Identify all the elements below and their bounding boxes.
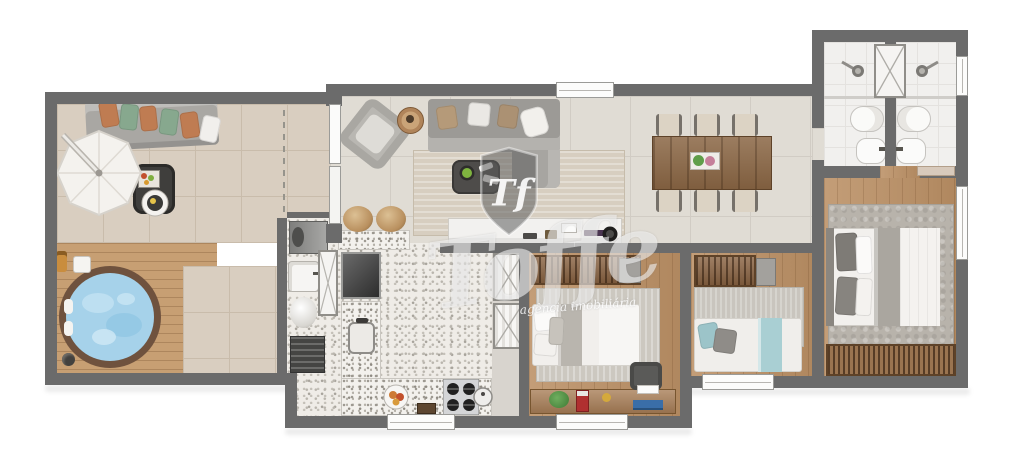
- wall: [326, 84, 342, 106]
- bed-duvet: [900, 228, 940, 326]
- fruit: [144, 180, 149, 185]
- candle: [56, 251, 67, 272]
- door-sill: [917, 166, 955, 176]
- wall: [45, 373, 297, 385]
- hot-tub: [58, 265, 162, 369]
- dining-chair: [732, 190, 758, 212]
- paper: [637, 385, 659, 394]
- shower-head: [914, 58, 940, 80]
- headboard: [826, 228, 834, 326]
- wall: [45, 92, 337, 104]
- books: [633, 400, 663, 408]
- refrigerator: [341, 252, 381, 299]
- washer-door: [292, 227, 304, 247]
- bench-wardrobe: [826, 344, 956, 376]
- decor-bowl: [459, 165, 475, 181]
- master-doorway: [880, 166, 920, 178]
- throw-pillow: [467, 102, 491, 127]
- bar-stool: [376, 206, 406, 232]
- wall: [277, 218, 287, 373]
- console-decor: [523, 233, 537, 239]
- console-decor: [561, 223, 577, 233]
- patio-umbrella: [55, 129, 143, 217]
- floor-plan: Tf Toffe agência imobiliária: [0, 0, 1024, 474]
- fruit: [148, 175, 154, 181]
- wall: [440, 243, 812, 253]
- cutting-board: [417, 403, 436, 414]
- window: [387, 414, 455, 430]
- plan-shadow: [285, 428, 692, 435]
- bed-pillow: [548, 317, 564, 346]
- side-tray: [141, 189, 169, 217]
- sliding-door-panel: [329, 104, 341, 164]
- duct-shaft: [874, 44, 906, 98]
- deck-light: [62, 353, 75, 366]
- desk-decor: [602, 393, 611, 402]
- window: [956, 56, 968, 96]
- plant: [705, 156, 715, 166]
- wall: [812, 96, 824, 128]
- shower-head: [840, 58, 866, 80]
- throw-pillow: [179, 111, 200, 139]
- breakfast-bar: [338, 230, 410, 250]
- throw-pillow: [158, 108, 179, 136]
- laundry-sink: [288, 261, 319, 292]
- wall: [287, 212, 330, 218]
- speaker: [602, 226, 618, 242]
- fruit-bowl: [383, 384, 409, 410]
- balcony-floor: [183, 266, 277, 373]
- fruit: [141, 173, 147, 179]
- drying-rack: [290, 336, 325, 373]
- book: [576, 390, 589, 412]
- laundry-basin: [290, 297, 317, 328]
- dining-chair: [732, 114, 758, 136]
- wall: [812, 166, 880, 178]
- throw-pillow: [139, 105, 159, 132]
- wall: [45, 92, 57, 385]
- window: [956, 186, 968, 260]
- wardrobe-shelf: [619, 258, 641, 283]
- window: [556, 82, 614, 98]
- toilet: [850, 106, 884, 132]
- desk-plant: [549, 391, 569, 408]
- dining-chair: [656, 190, 682, 212]
- wall: [812, 30, 824, 96]
- wardrobe-shelf: [756, 258, 776, 286]
- wall: [519, 253, 529, 416]
- throw-pillow: [119, 103, 140, 131]
- bathroom-sink: [856, 138, 886, 164]
- window: [702, 374, 774, 390]
- prep-sink: [473, 387, 493, 407]
- plant: [693, 155, 704, 166]
- folded-towel: [73, 256, 91, 273]
- bar-stool: [343, 206, 373, 232]
- wall: [680, 253, 691, 416]
- bed-pillow: [855, 278, 873, 317]
- kitchen-sink: [348, 322, 375, 354]
- side-table: [397, 107, 424, 134]
- throw-pillow: [496, 104, 519, 130]
- bed-blanket: [874, 228, 900, 326]
- dining-chair: [656, 114, 682, 136]
- sliding-door-panel: [329, 166, 341, 224]
- bathroom-sink: [896, 138, 926, 164]
- sofa-chaise: [512, 150, 560, 188]
- dining-chair: [694, 190, 720, 212]
- duct-shaft: [318, 250, 338, 316]
- bed-blanket: [758, 318, 782, 372]
- wall: [812, 30, 968, 42]
- deck-floor-step: [183, 243, 217, 266]
- console-decor: [545, 230, 557, 239]
- faucet: [895, 147, 903, 151]
- dining-chair: [694, 114, 720, 136]
- bathroom-left-doorway: [812, 128, 824, 160]
- wall: [326, 224, 342, 243]
- wall: [812, 160, 824, 376]
- faucet: [356, 318, 368, 323]
- bed-pillow: [712, 328, 737, 355]
- throw-pillow: [435, 105, 458, 131]
- projection-dashed-line: [283, 98, 285, 216]
- wardrobe: [694, 255, 756, 287]
- bed-pillow: [855, 236, 872, 275]
- wall: [285, 416, 690, 428]
- toilet: [897, 106, 931, 132]
- window: [556, 414, 628, 430]
